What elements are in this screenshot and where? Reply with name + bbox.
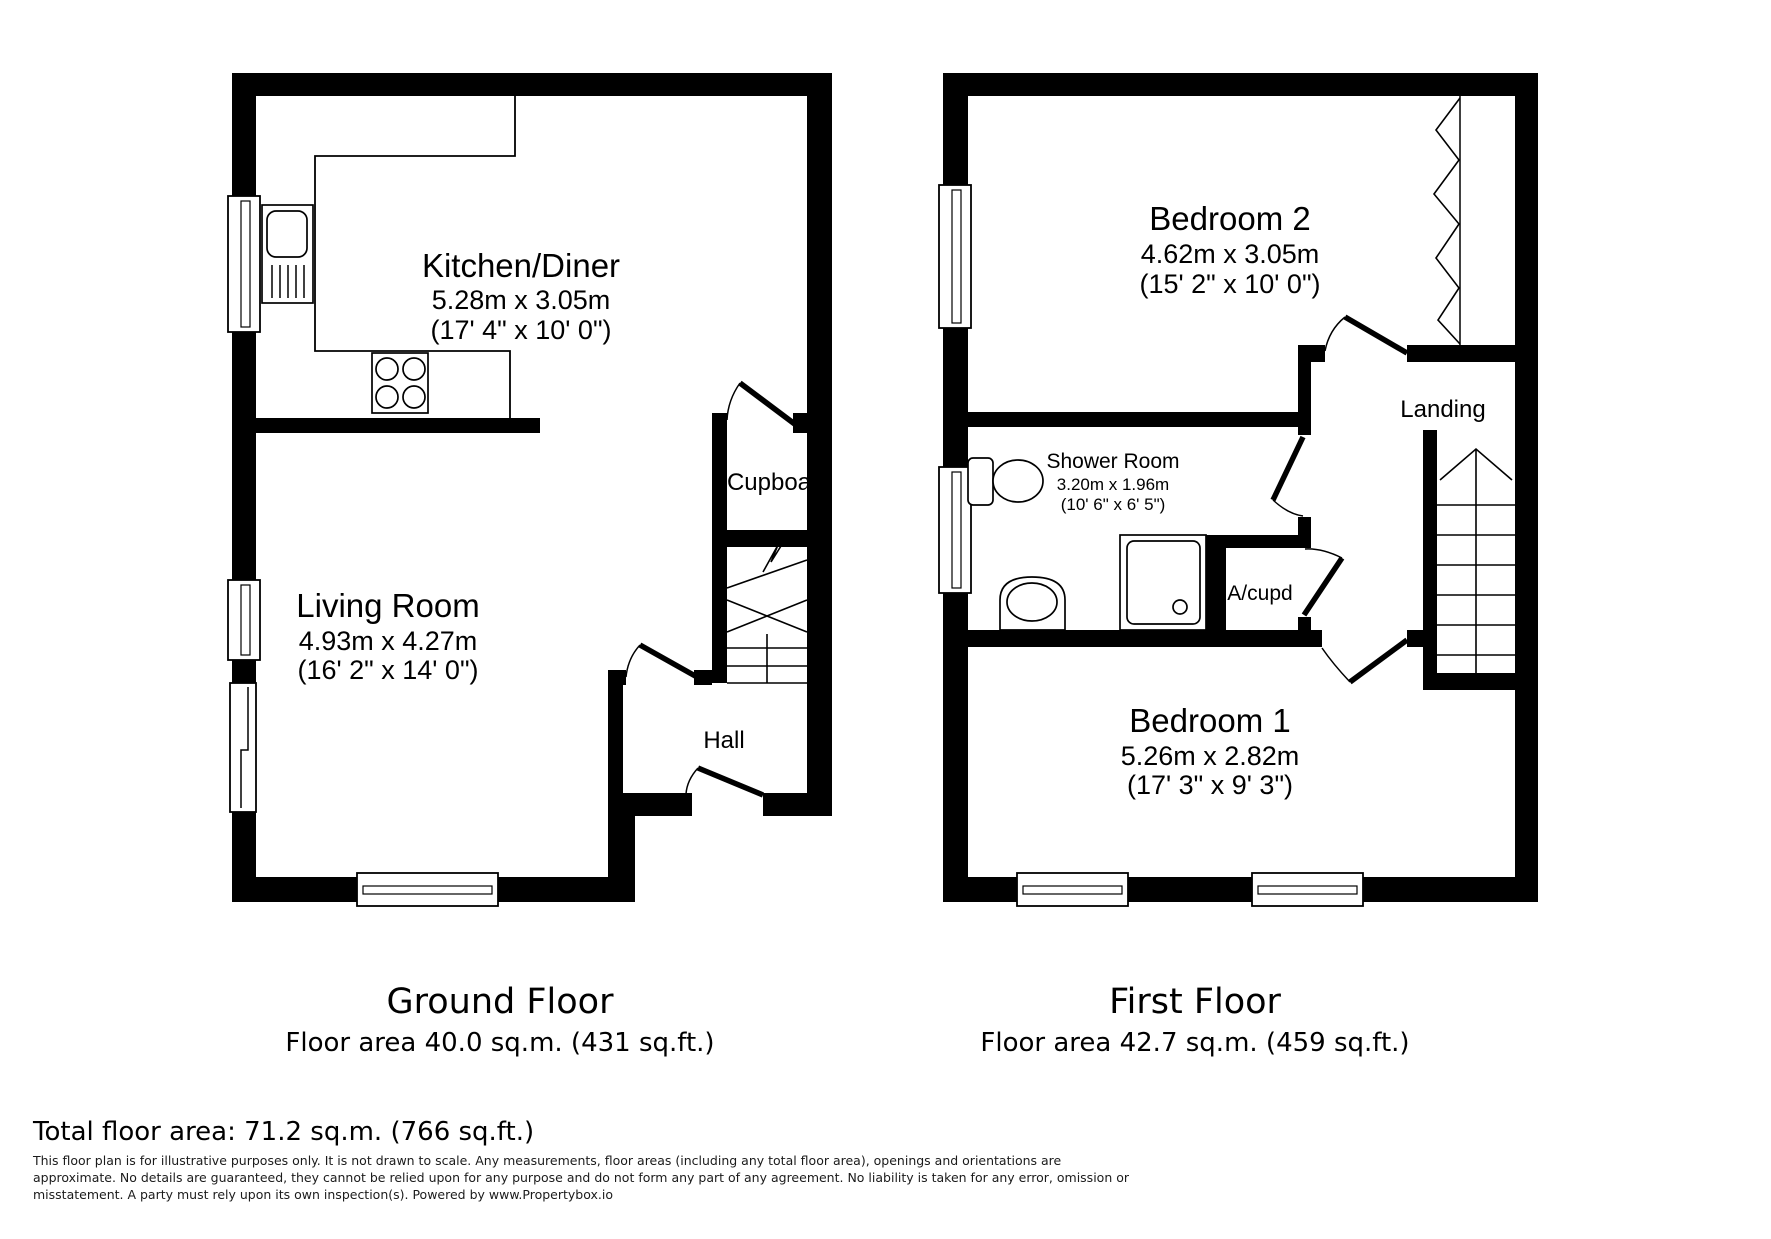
living-room-label: Living Room — [296, 587, 479, 624]
living-room-bottom-window — [357, 873, 498, 906]
toilet-fixture — [968, 458, 1043, 505]
hall-label: Hall — [703, 727, 744, 754]
disclaimer: This floor plan is for illustrative purp… — [32, 1153, 1130, 1202]
bedroom1-window-right — [1252, 873, 1363, 906]
bedroom1-window-left — [1017, 873, 1128, 906]
bedroom2-label: Bedroom 2 — [1149, 200, 1310, 237]
bedroom2-dims-m: 4.62m x 3.05m — [1141, 239, 1320, 269]
disclaimer-line-1: This floor plan is for illustrative purp… — [32, 1153, 1062, 1168]
disclaimer-line-2: approximate. No details are guaranteed, … — [33, 1170, 1130, 1185]
shower-room-door — [1273, 437, 1303, 516]
shower-room-window — [939, 467, 971, 593]
floorplan-page: Kitchen/Diner 5.28m x 3.05m (17' 4" x 10… — [0, 0, 1771, 1239]
bedroom1-door — [1322, 640, 1407, 682]
bedroom1-dims-ft: (17' 3" x 9' 3") — [1127, 770, 1293, 800]
first-floor-caption: First Floor — [1109, 982, 1281, 1022]
basin-fixture — [1000, 577, 1065, 630]
ground-floor-area: Floor area 40.0 sq.m. (431 sq.ft.) — [285, 1028, 714, 1058]
first-floor-area: Floor area 42.7 sq.m. (459 sq.ft.) — [980, 1028, 1409, 1058]
kitchen-sink-fixture — [262, 205, 313, 303]
cupboard-label: Cupboa — [727, 469, 812, 496]
shower-room-dims-ft: (10' 6" x 6' 5") — [1061, 495, 1166, 514]
ground-floor-stairs — [727, 538, 807, 683]
shower-room-dims-m: 3.20m x 1.96m — [1057, 475, 1169, 494]
bedroom2-door — [1325, 317, 1407, 353]
bedroom1-label: Bedroom 1 — [1129, 702, 1290, 739]
floorplan-canvas: Kitchen/Diner 5.28m x 3.05m (17' 4" x 10… — [0, 0, 1771, 1239]
ground-floor-plan: Kitchen/Diner 5.28m x 3.05m (17' 4" x 10… — [228, 73, 832, 906]
floor-captions: Ground Floor Floor area 40.0 sq.m. (431 … — [285, 982, 1409, 1058]
total-floor-area: Total floor area: 71.2 sq.m. (766 sq.ft.… — [32, 1117, 534, 1147]
first-floor-stairs — [1437, 449, 1515, 673]
living-room-window — [228, 580, 260, 660]
front-door — [686, 768, 763, 795]
shower-room-label: Shower Room — [1046, 450, 1179, 473]
first-floor-plan: Bedroom 2 4.62m x 3.05m (15' 2" x 10' 0"… — [939, 73, 1538, 906]
ground-floor-caption: Ground Floor — [387, 982, 615, 1022]
bedroom2-dims-ft: (15' 2" x 10' 0") — [1139, 269, 1320, 299]
bedroom1-dims-m: 5.26m x 2.82m — [1121, 741, 1300, 771]
kitchen-dims-ft: (17' 4" x 10' 0") — [430, 315, 611, 345]
landing-label: Landing — [1400, 396, 1485, 423]
bedroom2-wardrobe — [1434, 96, 1460, 345]
kitchen-dims-m: 5.28m x 3.05m — [432, 285, 611, 315]
living-room-door — [626, 645, 697, 677]
kitchen-label: Kitchen/Diner — [422, 247, 620, 284]
living-room-dims-m: 4.93m x 4.27m — [299, 626, 478, 656]
living-room-tall-window — [230, 683, 256, 812]
airing-cupboard-door — [1304, 549, 1342, 615]
living-room-dims-ft: (16' 2" x 14' 0") — [297, 655, 478, 685]
cupboard-door — [727, 383, 800, 428]
disclaimer-line-3: misstatement. A party must rely upon its… — [33, 1187, 613, 1202]
shower-tray-fixture — [1120, 535, 1206, 630]
kitchen-hob-fixture — [372, 353, 428, 413]
kitchen-window — [228, 196, 260, 332]
airing-cupboard-label: A/cupd — [1227, 582, 1292, 605]
bedroom2-window — [939, 185, 971, 328]
